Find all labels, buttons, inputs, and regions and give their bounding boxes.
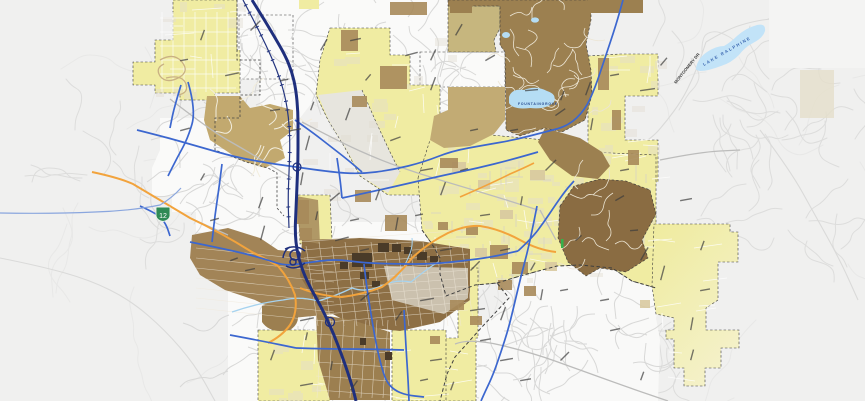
svg-text:FOUNTAINGROVE: FOUNTAINGROVE <box>518 102 558 106</box>
svg-text:12: 12 <box>159 213 167 220</box>
